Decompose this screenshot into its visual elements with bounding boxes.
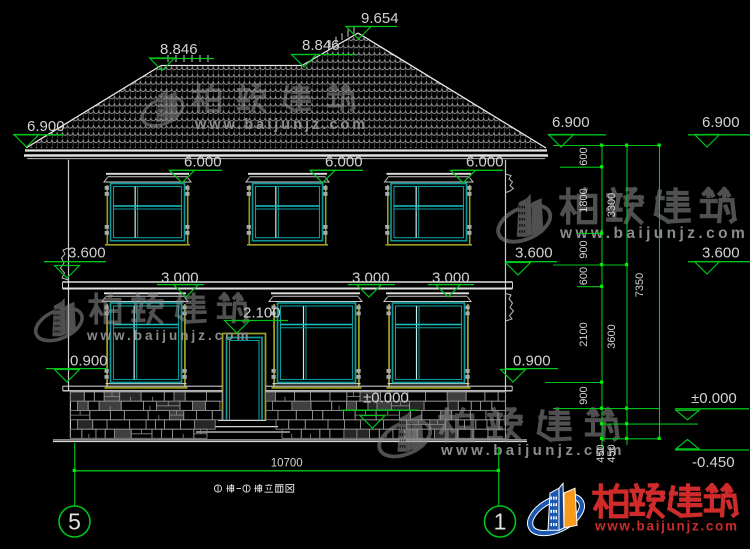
svg-text:8.846: 8.846 [160, 41, 198, 58]
svg-text:1: 1 [494, 509, 507, 535]
svg-text:6.000: 6.000 [325, 154, 363, 171]
svg-text:600: 600 [578, 147, 590, 165]
svg-text:3600: 3600 [606, 324, 618, 348]
svg-text:6.000: 6.000 [184, 154, 222, 171]
svg-text:3.600: 3.600 [515, 245, 553, 262]
svg-text:6.000: 6.000 [466, 154, 504, 171]
svg-text:2100: 2100 [578, 322, 590, 346]
svg-text:3.600: 3.600 [702, 245, 740, 262]
svg-text:5: 5 [68, 509, 81, 535]
svg-text:2.100: 2.100 [243, 305, 281, 322]
svg-text:www.baijunjz.com: www.baijunjz.com [594, 519, 739, 534]
svg-text:3300: 3300 [606, 193, 618, 217]
svg-text:www.baijunjz.com: www.baijunjz.com [194, 117, 368, 133]
svg-text:9.654: 9.654 [361, 10, 399, 27]
svg-text:www.baijunjz.com: www.baijunjz.com [86, 328, 252, 343]
svg-text:1800: 1800 [578, 188, 590, 212]
svg-text:±0.000: ±0.000 [363, 390, 409, 407]
svg-text:±0.000: ±0.000 [691, 390, 737, 407]
svg-text:6.900: 6.900 [702, 114, 740, 131]
svg-text:8.846: 8.846 [302, 37, 340, 54]
svg-text:3.600: 3.600 [68, 245, 106, 262]
svg-text:600: 600 [578, 267, 590, 285]
svg-text:0.900: 0.900 [513, 353, 551, 370]
svg-text:-0.450: -0.450 [692, 454, 735, 471]
svg-text:450: 450 [606, 444, 618, 462]
svg-text:7350: 7350 [634, 273, 646, 297]
svg-text:900: 900 [578, 386, 590, 404]
svg-text:0.900: 0.900 [70, 353, 108, 370]
svg-text:900: 900 [578, 240, 590, 258]
svg-text:6.900: 6.900 [27, 118, 65, 135]
svg-text:10700: 10700 [271, 458, 303, 470]
svg-text:6.900: 6.900 [552, 114, 590, 131]
